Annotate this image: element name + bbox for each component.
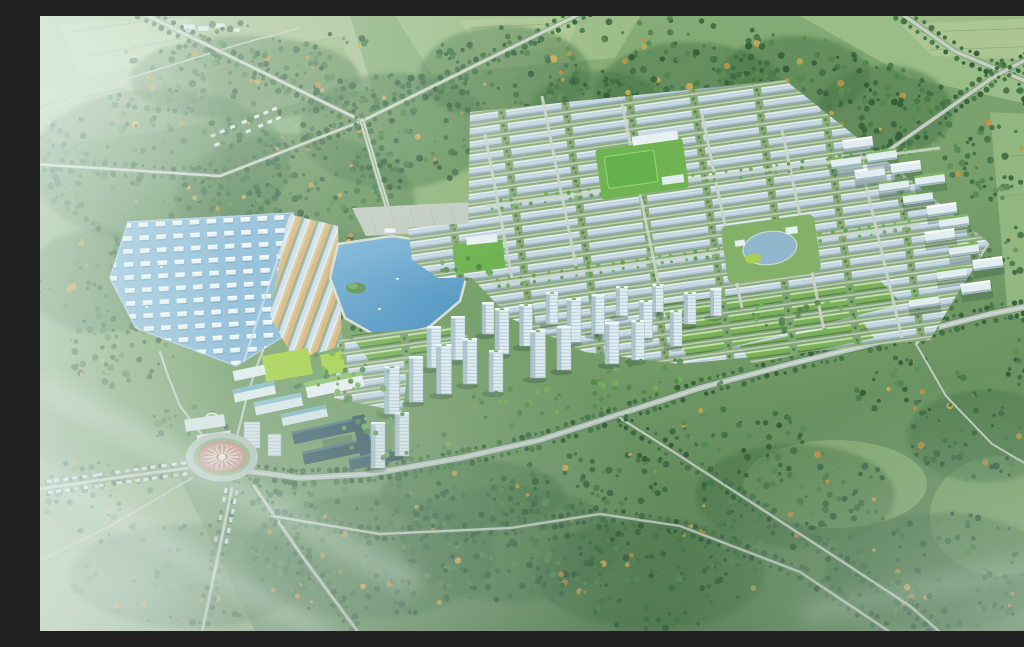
masterplan-render: Farmland patchwork Surrounding forest be…	[40, 16, 1024, 631]
atmospheric-haze	[40, 16, 1024, 631]
masterplan-svg: Farmland patchwork Surrounding forest be…	[40, 16, 1024, 631]
